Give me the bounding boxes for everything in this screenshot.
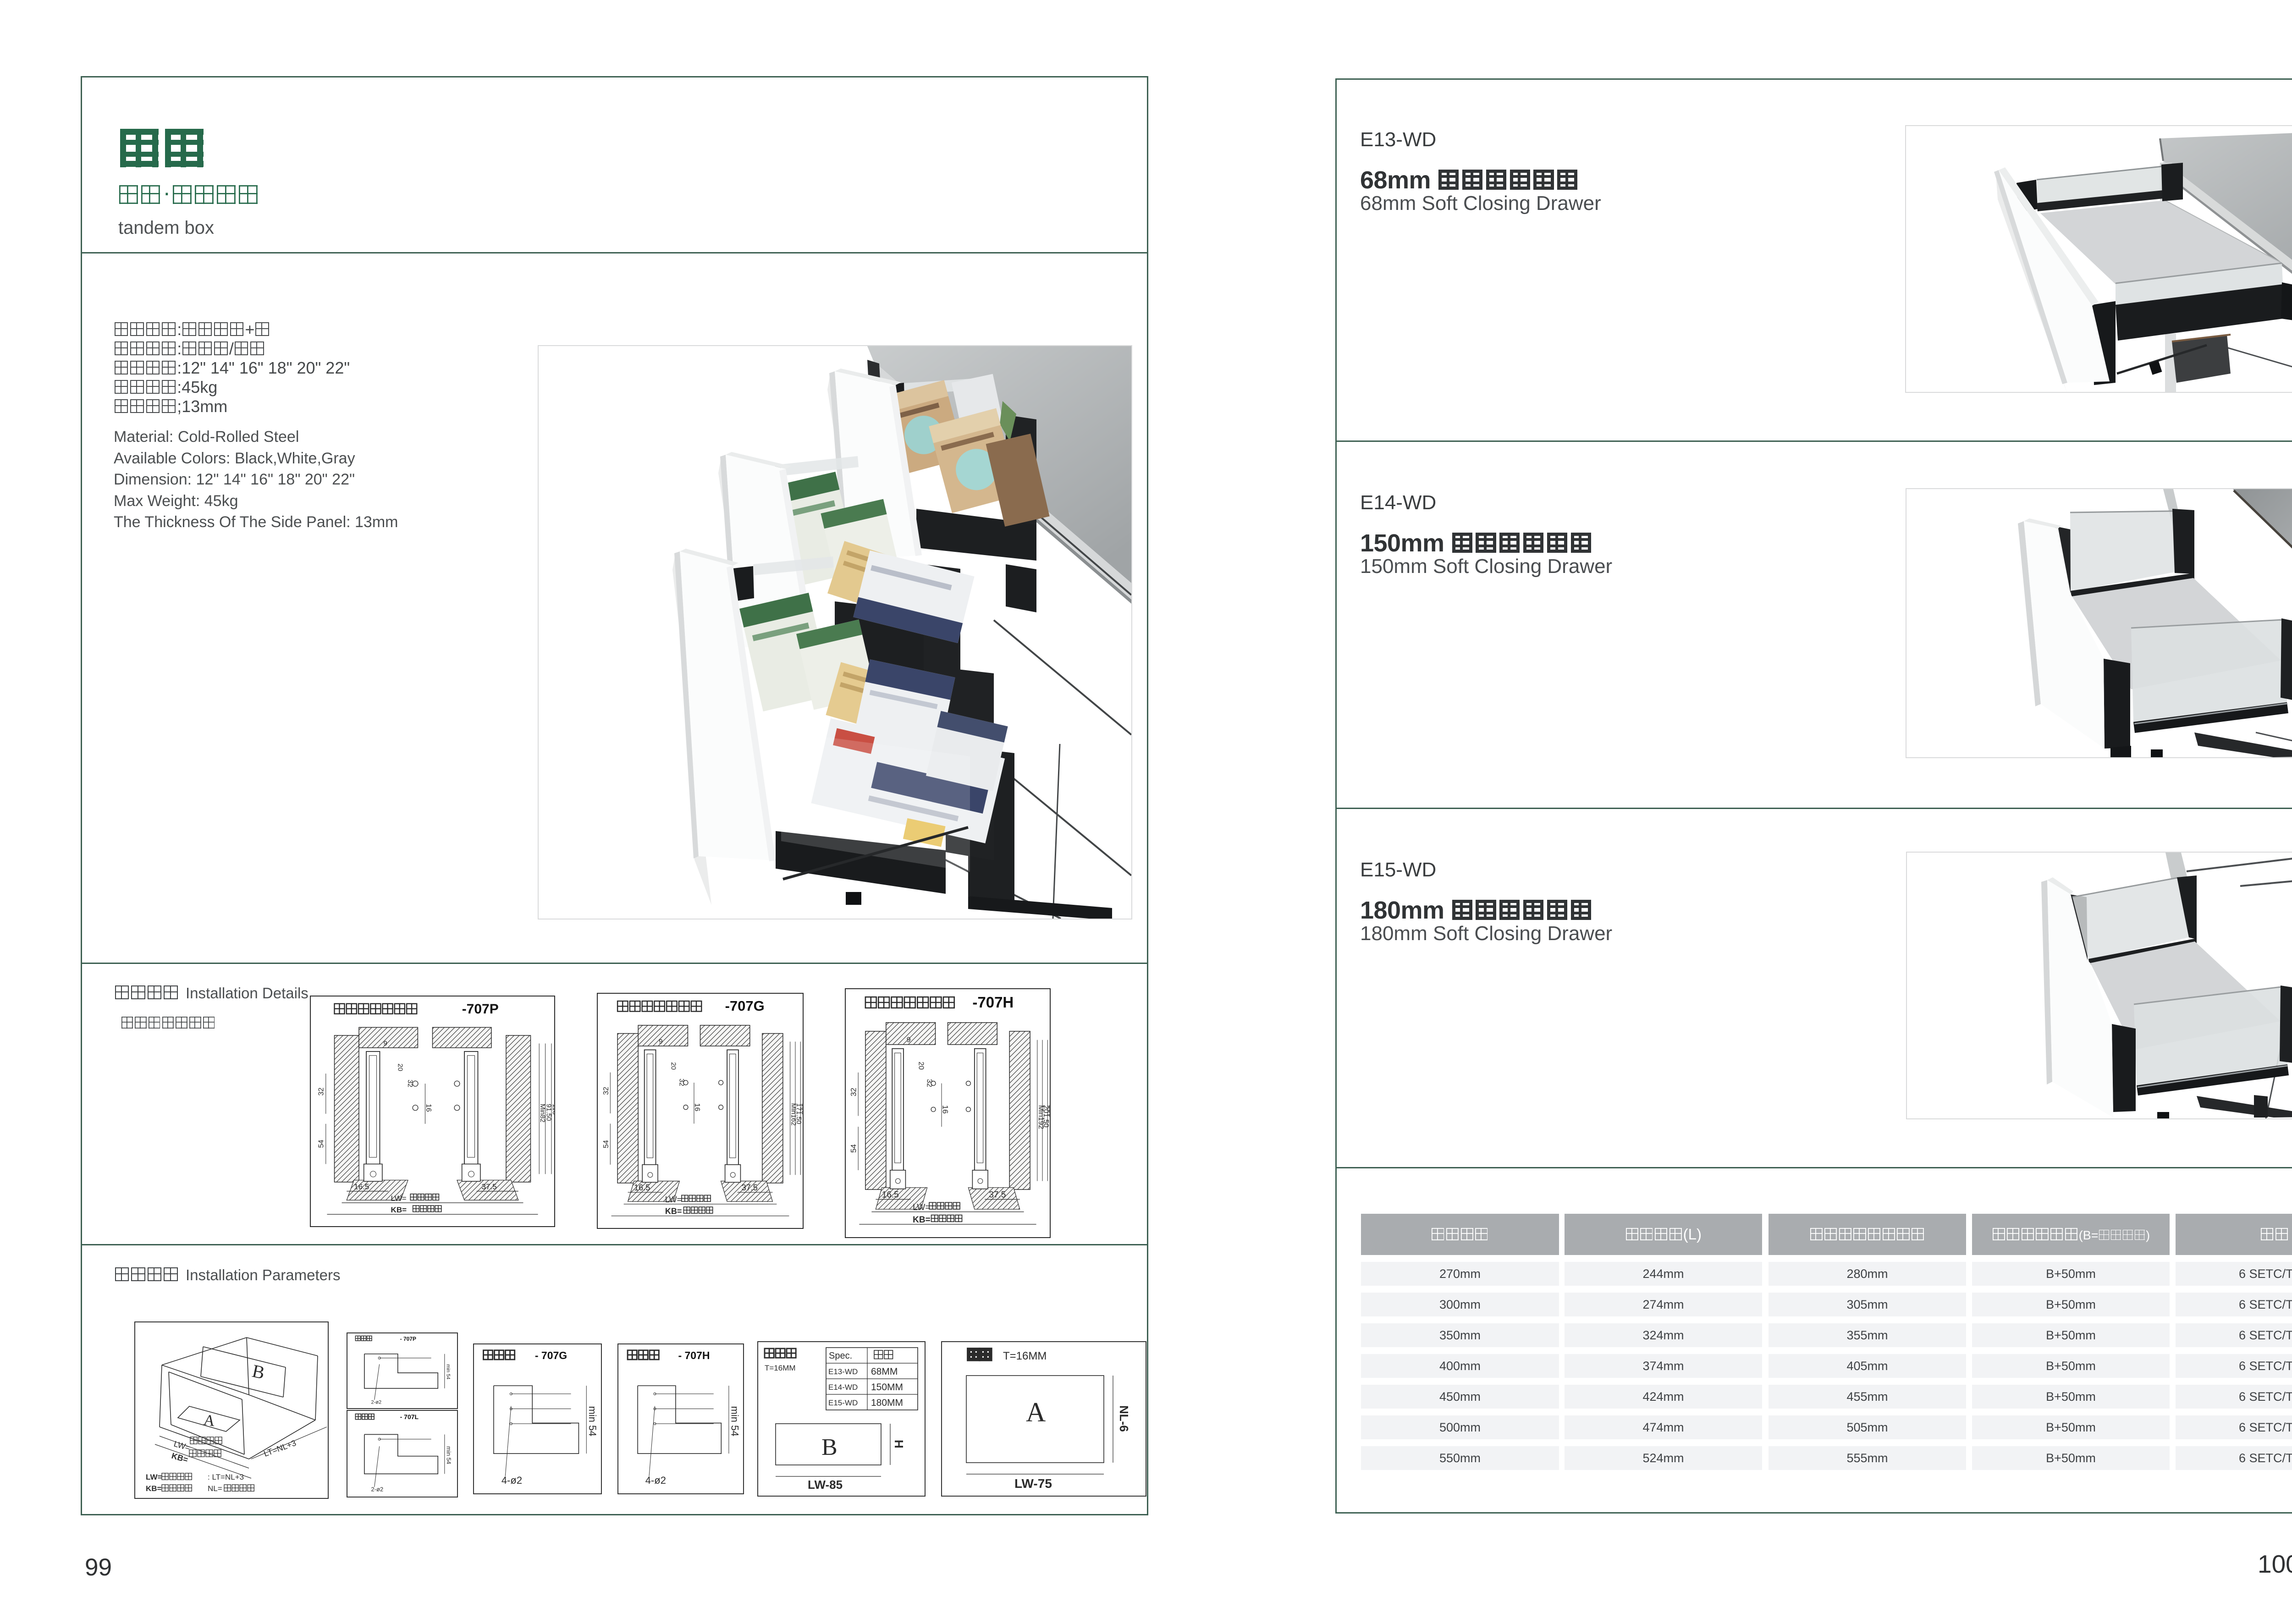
svg-text:113: 113 xyxy=(551,1104,555,1115)
svg-text:37.5: 37.5 xyxy=(742,1183,758,1192)
svg-text:E13-WD: E13-WD xyxy=(828,1367,858,1376)
svg-text:54: 54 xyxy=(849,1144,858,1153)
svg-text:LW=: LW= xyxy=(146,1473,162,1481)
svg-text:LW=: LW= xyxy=(665,1195,682,1204)
svg-text:LT=NL+3: LT=NL+3 xyxy=(263,1438,298,1459)
svg-text:T=16MM: T=16MM xyxy=(1003,1350,1047,1362)
svg-text:54: 54 xyxy=(317,1140,325,1148)
svg-text:LW=: LW= xyxy=(173,1439,191,1453)
svg-text:4-ø2: 4-ø2 xyxy=(501,1475,522,1486)
svg-text:E14-WD: E14-WD xyxy=(828,1383,858,1392)
svg-text:A: A xyxy=(1026,1397,1046,1427)
svg-text:LW=: LW= xyxy=(913,1203,930,1212)
svg-text:16: 16 xyxy=(941,1105,949,1114)
svg-text:2-ø2: 2-ø2 xyxy=(371,1399,381,1405)
svg-text:NL-6: NL-6 xyxy=(1117,1405,1131,1432)
svg-text:180MM: 180MM xyxy=(871,1398,903,1408)
svg-text:-707G: -707G xyxy=(725,998,765,1014)
svg-text:B: B xyxy=(250,1360,266,1383)
svg-text:A: A xyxy=(203,1411,216,1430)
svg-text:54: 54 xyxy=(602,1140,610,1148)
svg-text:16.5: 16.5 xyxy=(634,1183,650,1192)
svg-text:16.5: 16.5 xyxy=(882,1190,899,1200)
svg-text:68MM: 68MM xyxy=(871,1366,898,1377)
svg-text:-707P: -707P xyxy=(462,1002,499,1017)
svg-text:H: H xyxy=(892,1440,906,1448)
svg-text:T=16MM: T=16MM xyxy=(765,1364,796,1372)
svg-text:32: 32 xyxy=(849,1088,858,1096)
svg-text:: LT=NL+3: : LT=NL+3 xyxy=(208,1473,244,1481)
svg-text:min 54: min 54 xyxy=(446,1446,452,1464)
svg-text:32: 32 xyxy=(406,1079,414,1087)
svg-text:2-ø2: 2-ø2 xyxy=(371,1486,383,1493)
svg-text:16.5: 16.5 xyxy=(354,1183,369,1191)
svg-text:16: 16 xyxy=(693,1103,701,1112)
svg-text:20: 20 xyxy=(397,1063,404,1071)
svg-text:- 707G: - 707G xyxy=(535,1349,567,1361)
svg-text:4-ø2: 4-ø2 xyxy=(645,1475,666,1486)
svg-text:NL=: NL= xyxy=(208,1484,222,1493)
svg-text:32: 32 xyxy=(602,1087,610,1095)
svg-text:min 54: min 54 xyxy=(446,1364,451,1379)
svg-text:KB=: KB= xyxy=(665,1207,682,1216)
svg-text:min 54: min 54 xyxy=(729,1406,740,1437)
svg-text:KB=: KB= xyxy=(146,1484,162,1493)
svg-text:E15-WD: E15-WD xyxy=(828,1398,858,1407)
svg-text:9: 9 xyxy=(907,1036,911,1044)
svg-text:16: 16 xyxy=(424,1104,432,1112)
svg-text:37.5: 37.5 xyxy=(482,1183,497,1191)
svg-text:KB=: KB= xyxy=(391,1206,407,1214)
svg-text:37.5: 37.5 xyxy=(989,1190,1006,1200)
svg-text:9: 9 xyxy=(384,1040,387,1047)
svg-text:32: 32 xyxy=(926,1079,933,1087)
svg-text:LW-85: LW-85 xyxy=(808,1478,843,1492)
svg-text:20: 20 xyxy=(669,1062,677,1070)
svg-text:9: 9 xyxy=(659,1038,662,1046)
svg-text:32: 32 xyxy=(678,1079,685,1086)
svg-text:min 54: min 54 xyxy=(587,1406,598,1437)
svg-text:LW-75: LW-75 xyxy=(1014,1476,1052,1491)
svg-text:20: 20 xyxy=(917,1062,925,1070)
svg-text:LW=: LW= xyxy=(391,1194,407,1203)
svg-text:195: 195 xyxy=(800,1103,804,1115)
svg-text:- 707P: - 707P xyxy=(400,1336,416,1342)
svg-text:-707H: -707H xyxy=(972,994,1014,1011)
svg-text:150MM: 150MM xyxy=(871,1382,903,1393)
svg-text:Spec.: Spec. xyxy=(829,1351,852,1361)
svg-text:- 707H: - 707H xyxy=(678,1349,710,1361)
svg-text:- 707L: - 707L xyxy=(400,1413,419,1420)
svg-text:KB=: KB= xyxy=(171,1451,189,1464)
svg-text:KB=: KB= xyxy=(913,1215,931,1225)
svg-text:225: 225 xyxy=(1047,1105,1051,1118)
svg-text:B: B xyxy=(821,1434,837,1460)
svg-text:32: 32 xyxy=(317,1088,325,1096)
